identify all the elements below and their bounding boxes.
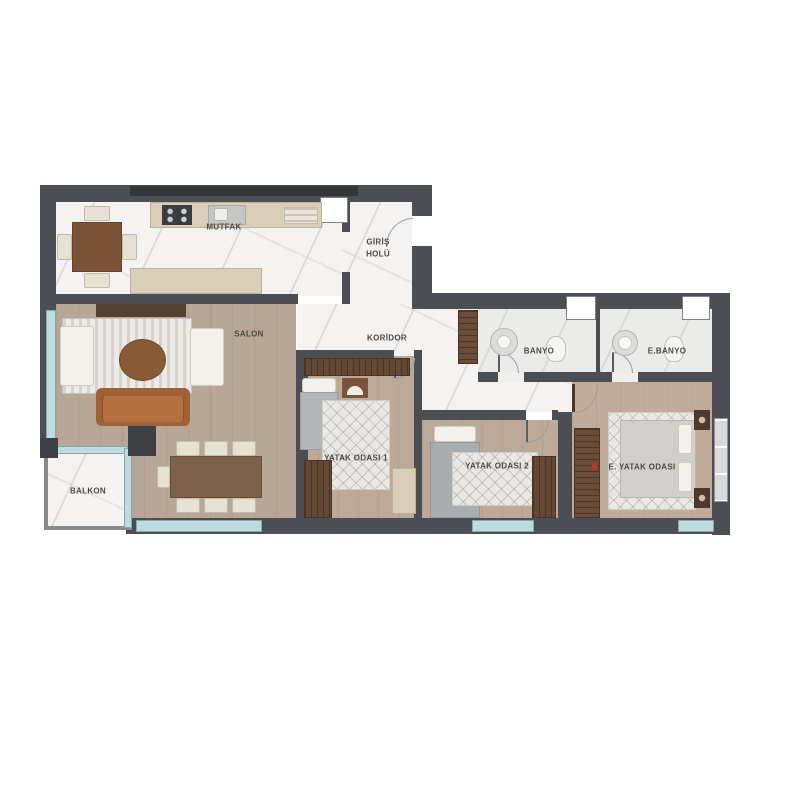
dining-chair-5 [204,498,228,513]
wall-bedroom2-top [422,410,526,420]
wall-kitchen-living [40,294,298,304]
master-pillow-2 [678,462,692,492]
wall-bath-divider [596,309,600,374]
master-nightstand-2 [694,488,710,508]
wall-entrance [412,185,432,309]
bathroom-door-gap [498,372,524,382]
dining-chair-6 [232,498,256,513]
kitchen-chair-top [84,206,110,221]
ensuite-door-gap [612,372,638,382]
tv-unit [96,304,186,317]
kitchen-chair-right [122,234,137,260]
kitchen-label: MUTFAK [206,222,241,233]
bedroom1-wardrobe-top [304,358,410,376]
bedroom1-label: YATAK ODASI 1 [324,453,388,464]
bathroom-window [566,296,596,320]
master-label-marker [592,463,597,470]
bedroom2-bottom-window [472,520,534,532]
wall-left-corner-block [40,438,58,458]
kitchen-chair-bottom [84,273,110,288]
kitchen-table [72,222,122,272]
wall-bedroom1-top [296,350,394,358]
corridor-label: KORİDOR [367,333,407,344]
balcony-right-window [124,448,132,528]
bedroom1-pillow [302,378,336,393]
master-pillow-1 [678,424,692,454]
bedroom1-wardrobe-left [304,460,332,518]
dining-chair-3 [232,441,256,456]
armchair-left [60,326,94,386]
bathroom-basin-bowl [497,335,511,349]
balcony-top-window [52,446,128,454]
kitchen-window [320,197,348,223]
entrance-hall-label-line2: HOLÜ [366,249,390,260]
bedroom2-wardrobe [532,456,556,518]
kitchen-chair-left [57,234,72,260]
bedroom1-rug [322,400,390,490]
bedroom1-dresser [392,468,416,514]
balcony-wall-bottom [44,526,132,530]
coffee-table [119,339,166,381]
dining-chair-2 [204,441,228,456]
bedroom2-label: YATAK ODASI 2 [465,461,529,472]
ensuite-bathroom-label: E.BANYO [648,346,687,357]
kitchen-sink-bowl [214,208,228,221]
kitchen-appliance [284,207,318,224]
wall-top-accent [130,186,358,196]
ensuite-basin-bowl [618,336,632,350]
armchair-right [190,328,224,386]
kitchen-island [130,268,262,294]
balcony-wall-left [44,452,48,530]
master-nightstand-1 [694,410,710,430]
sofa-seat [102,396,184,422]
living-room-left-window [46,310,56,444]
dining-chair-4 [176,498,200,513]
master-wardrobe [574,428,600,518]
master-right-window [714,418,728,502]
ensuite-window [682,296,710,320]
living-room-column [128,422,156,456]
wall-hall-stub-bottom [342,272,350,304]
wall-master-left [558,412,572,518]
floor-plan: MUTFAK GİRİŞ HOLÜ SALON KORİDOR BANYO E.… [0,0,800,800]
bedroom2-pillow [434,426,476,442]
living-bottom-window [136,520,262,532]
dining-chair-7 [157,466,170,488]
dining-table [170,456,262,498]
corridor-cabinet [458,310,478,364]
bedroom1-pouf-arc [347,386,363,395]
balcony-label: BALKON [70,486,106,497]
bathroom-label: BANYO [524,346,554,357]
entrance-hall-label-line1: GİRİŞ [366,237,389,248]
master-bedroom-label: E. YATAK ODASI [608,462,675,473]
dining-chair-1 [176,441,200,456]
living-room-label: SALON [234,329,264,340]
entrance-door-gap [412,216,432,246]
master-bottom-window [678,520,714,532]
stove [162,205,192,225]
